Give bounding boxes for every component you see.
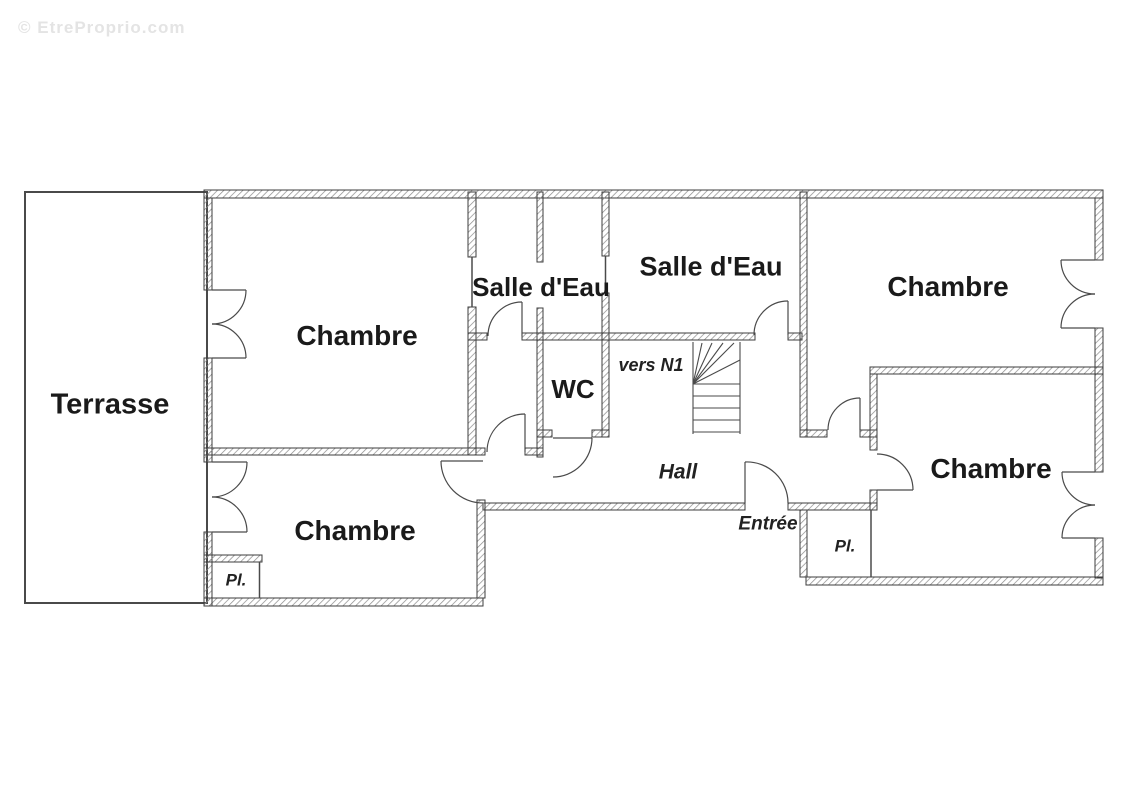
- door-salle-deau-center: [754, 301, 788, 335]
- thin-partitions: [260, 256, 872, 598]
- french-door-chambre-top-right: [1061, 260, 1095, 328]
- door-chambre-bottom-left: [441, 461, 483, 503]
- room-label-terrasse: Terrasse: [51, 391, 170, 420]
- french-door-chambre-bottom-right: [1062, 472, 1095, 538]
- floorplan-page: © EtreProprio.com: [0, 0, 1131, 800]
- door-entrance: [745, 462, 788, 503]
- french-door-terrasse-top: [212, 290, 246, 358]
- closet-label-left: Pl.: [226, 572, 247, 589]
- door-chambre-bottom-right: [877, 454, 913, 490]
- closet-label-right: Pl.: [835, 538, 856, 555]
- french-door-terrasse-bottom: [212, 462, 247, 532]
- room-label-hall: Hall: [659, 462, 698, 483]
- door-chambre-top-right: [828, 398, 860, 430]
- staircase: [693, 342, 740, 434]
- door-passage: [487, 414, 525, 452]
- stairs-direction-label: vers N1: [618, 356, 683, 374]
- door-salle-deau-left: [488, 302, 522, 336]
- entrance-label: Entrée: [738, 515, 797, 534]
- room-label-chambre-bottom-left: Chambre: [294, 517, 415, 545]
- room-label-salle-deau-center: Salle d'Eau: [640, 254, 783, 281]
- room-label-salle-deau-left: Salle d'Eau: [472, 274, 610, 300]
- room-label-wc: WC: [551, 376, 594, 402]
- door-wc: [553, 438, 592, 477]
- room-label-chambre-bottom-right: Chambre: [930, 455, 1051, 483]
- room-label-chambre-top-left: Chambre: [296, 322, 417, 350]
- room-label-chambre-top-right: Chambre: [887, 273, 1008, 301]
